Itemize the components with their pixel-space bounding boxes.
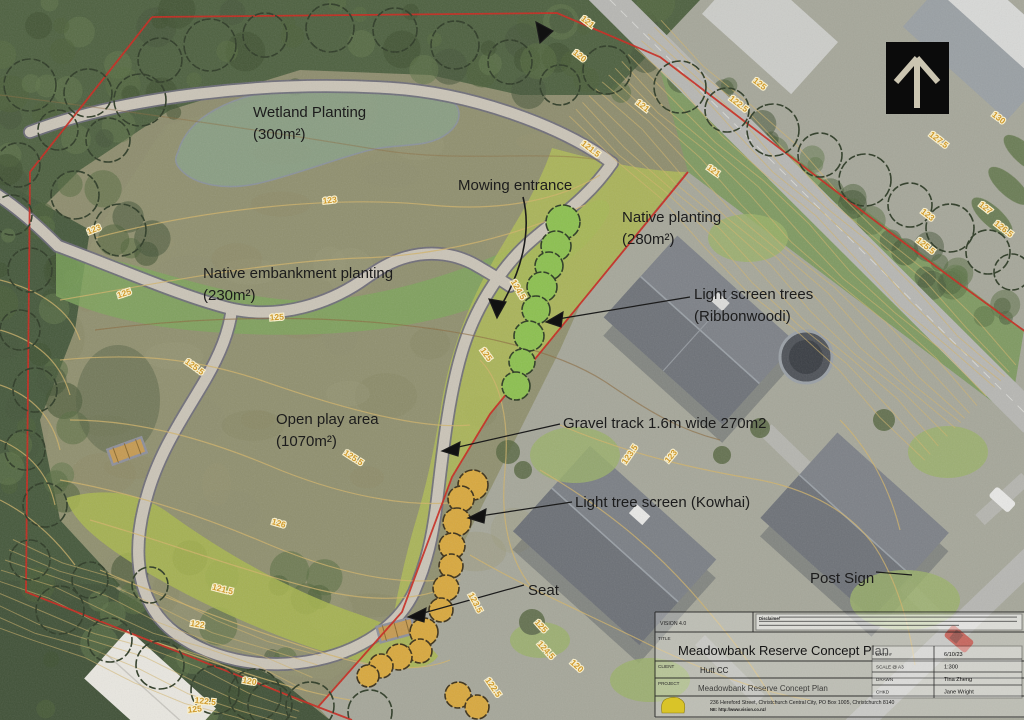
project-field-label: PROJECT bbox=[658, 681, 680, 686]
field-label: DATE # bbox=[876, 652, 892, 657]
sheet-title: Meadowbank Reserve Concept Plan bbox=[678, 643, 889, 658]
company-website: NE: http://www.vision.co.nz/ bbox=[710, 707, 767, 712]
field-value: 6/10/23 bbox=[944, 652, 963, 658]
client-field-label: CLIENT bbox=[658, 664, 675, 669]
title-field-label: TITLE bbox=[658, 636, 671, 641]
contour-label: 125 bbox=[269, 312, 284, 323]
label-seat: Seat bbox=[528, 582, 560, 599]
field-label: SCALE @ A3 bbox=[876, 665, 904, 670]
field-value: Jane Wright bbox=[944, 690, 974, 696]
concept-plan-map: Wetland Planting(300m²)Mowing entranceNa… bbox=[0, 0, 1024, 720]
label-mowing-entrance: Mowing entrance bbox=[458, 177, 572, 194]
contour-label: 125 bbox=[187, 703, 202, 714]
disclaimer-label: Disclaimer bbox=[759, 616, 781, 621]
project-name: Meadowbank Reserve Concept Plan bbox=[698, 684, 828, 693]
label-gravel-track: Gravel track 1.6m wide 270m2 bbox=[563, 415, 766, 432]
company-address: 236 Hereford Street, Christchurch Centra… bbox=[710, 700, 895, 706]
drawing-info-table: DATE #6/10/23SCALE @ A31:300DRAWNTina Zh… bbox=[872, 646, 1022, 698]
field-value: Tina Zheng bbox=[944, 677, 972, 683]
label-post-sign: Post Sign bbox=[810, 570, 874, 587]
field-label: DRAWN bbox=[876, 677, 893, 682]
contour-label: 123 bbox=[322, 194, 337, 205]
field-label: CHKD bbox=[876, 690, 890, 695]
label-light-tree-screen: Light tree screen (Kowhai) bbox=[575, 494, 750, 511]
field-value: 1:300 bbox=[944, 665, 958, 671]
concept-plan-screenshot: Wetland Planting(300m²)Mowing entranceNa… bbox=[0, 0, 1024, 720]
vision-version: VISION 4.0 bbox=[660, 621, 686, 627]
client-name: Hutt CC bbox=[700, 666, 729, 675]
north-arrow-icon bbox=[886, 42, 949, 114]
title-block: VISION 4.0 Disclaimer TITLE Meadowbank R… bbox=[655, 612, 1024, 718]
company-logo bbox=[661, 697, 684, 713]
